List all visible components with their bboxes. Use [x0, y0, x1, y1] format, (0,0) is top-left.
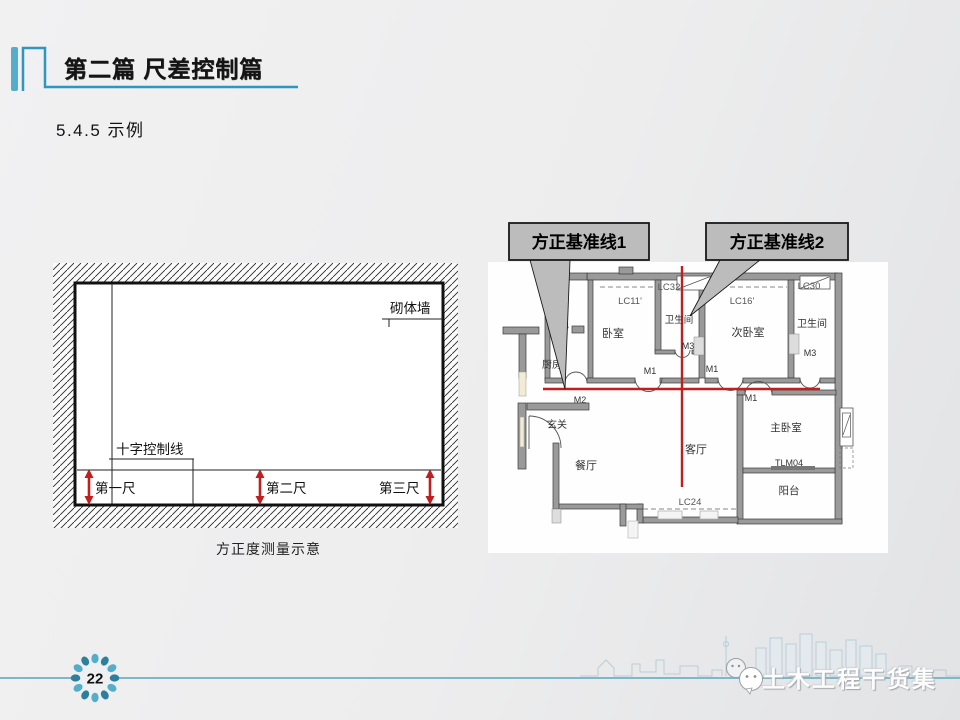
page-title: 第二篇 尺差控制篇 — [64, 50, 263, 84]
masonry-wall-label: 砌体墙 — [390, 301, 431, 316]
callout-1-label: 方正基准线1 — [532, 232, 626, 252]
callout-2-label: 方正基准线2 — [730, 232, 824, 252]
cross-control-line-label: 十字控制线 — [116, 442, 184, 457]
bathroom2-label: 卫生间 — [797, 317, 827, 330]
ruler-2-label: 第二尺 — [266, 480, 307, 496]
m1-door-label-3: M1 — [745, 393, 758, 403]
ruler-1-label: 第一尺 — [95, 480, 136, 496]
watermark-text: 土木工程干货集 — [762, 660, 937, 694]
entry-label: 玄关 — [547, 418, 567, 431]
page-number-badge: 22 — [67, 650, 123, 706]
master-bedroom-label: 主卧室 — [770, 421, 802, 434]
lc16-label: LC16' — [730, 296, 755, 307]
lc24-label: LC24 — [679, 497, 702, 508]
ruler-3-label: 第三尺 — [379, 480, 420, 496]
m3-door-label-2: M3 — [804, 348, 817, 358]
balcony-label: 阳台 — [779, 484, 800, 497]
slide-canvas: 第二篇 尺差控制篇 5.4.5 示例 砌体墙 十字控制线 — [0, 0, 960, 720]
m1-door-label-2: M1 — [706, 364, 719, 374]
lc32-label: LC32 — [658, 282, 681, 293]
dining-room-label: 餐厅 — [575, 458, 597, 472]
section-title: 5.4.5 示例 — [56, 116, 145, 141]
m3-door-label-1: M3 — [682, 341, 695, 351]
tlm04-label: TLM04 — [775, 458, 803, 468]
lc11-label: LC11' — [618, 296, 642, 307]
diagram-caption: 方正度测量示意 — [53, 539, 458, 559]
bathroom1-label: 卫生间 — [665, 314, 694, 326]
lc30-label: LC30 — [798, 281, 821, 292]
floor-plan: 厨房 B LC11' 卧室 卫生间 次卧室 LC16' 卫生间 LC30 LC3… — [488, 220, 888, 555]
living-room-label: 客厅 — [685, 442, 707, 456]
squareness-diagram: 砌体墙 十字控制线 第一尺 第二尺 第三尺 — [53, 263, 458, 528]
second-bedroom-label: 次卧室 — [732, 325, 765, 339]
bedroom-label: 卧室 — [602, 326, 624, 340]
m1-door-label-1: M1 — [644, 366, 657, 376]
page-number: 22 — [87, 671, 104, 688]
m2-door-label: M2 — [574, 395, 587, 405]
